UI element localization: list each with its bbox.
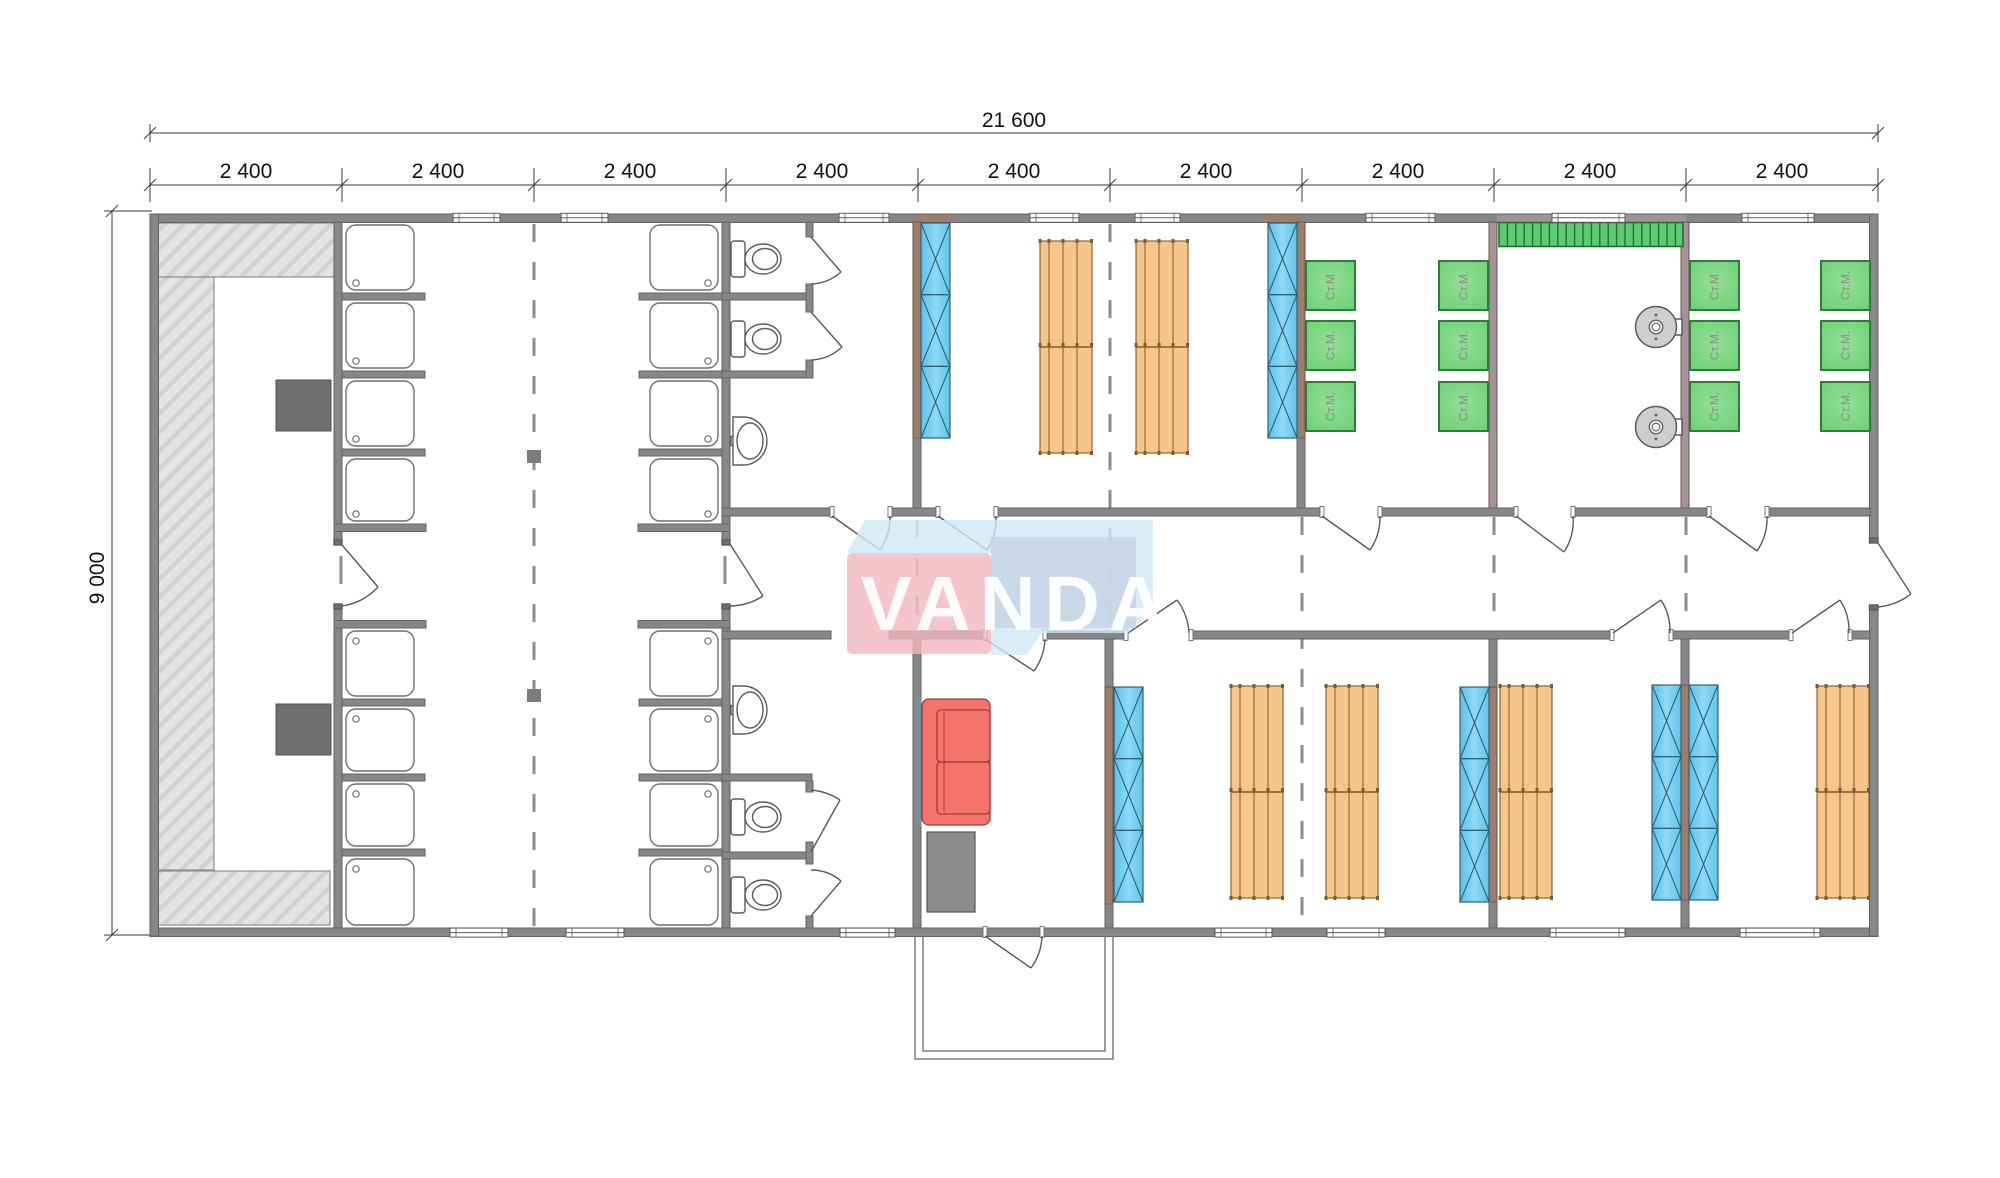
svg-text:2 400: 2 400 <box>1180 160 1233 183</box>
svg-text:21 600: 21 600 <box>982 109 1046 132</box>
svg-text:Ст.М.: Ст.М. <box>1324 331 1338 361</box>
svg-text:VANDA: VANDA <box>860 561 1173 647</box>
svg-text:2 400: 2 400 <box>1564 160 1617 183</box>
svg-text:2 400: 2 400 <box>604 160 657 183</box>
svg-text:Ст.М.: Ст.М. <box>1708 331 1722 361</box>
svg-text:Ст.М.: Ст.М. <box>1457 331 1471 361</box>
svg-text:2 400: 2 400 <box>220 160 273 183</box>
svg-text:2 400: 2 400 <box>796 160 849 183</box>
svg-text:Ст.М.: Ст.М. <box>1324 392 1338 422</box>
svg-text:Ст.М.: Ст.М. <box>1708 392 1722 422</box>
svg-text:2 400: 2 400 <box>1756 160 1809 183</box>
svg-text:2 400: 2 400 <box>412 160 465 183</box>
svg-text:Ст.М.: Ст.М. <box>1708 271 1722 301</box>
svg-text:2 400: 2 400 <box>988 160 1041 183</box>
svg-text:9 000: 9 000 <box>86 552 109 605</box>
svg-text:Ст.М.: Ст.М. <box>1324 271 1338 301</box>
svg-text:2 400: 2 400 <box>1372 160 1425 183</box>
svg-text:Ст.М.: Ст.М. <box>1839 392 1853 422</box>
svg-text:Ст.М.: Ст.М. <box>1457 392 1471 422</box>
svg-text:Ст.М.: Ст.М. <box>1457 271 1471 301</box>
svg-text:Ст.М.: Ст.М. <box>1839 331 1853 361</box>
svg-text:Ст.М.: Ст.М. <box>1839 271 1853 301</box>
